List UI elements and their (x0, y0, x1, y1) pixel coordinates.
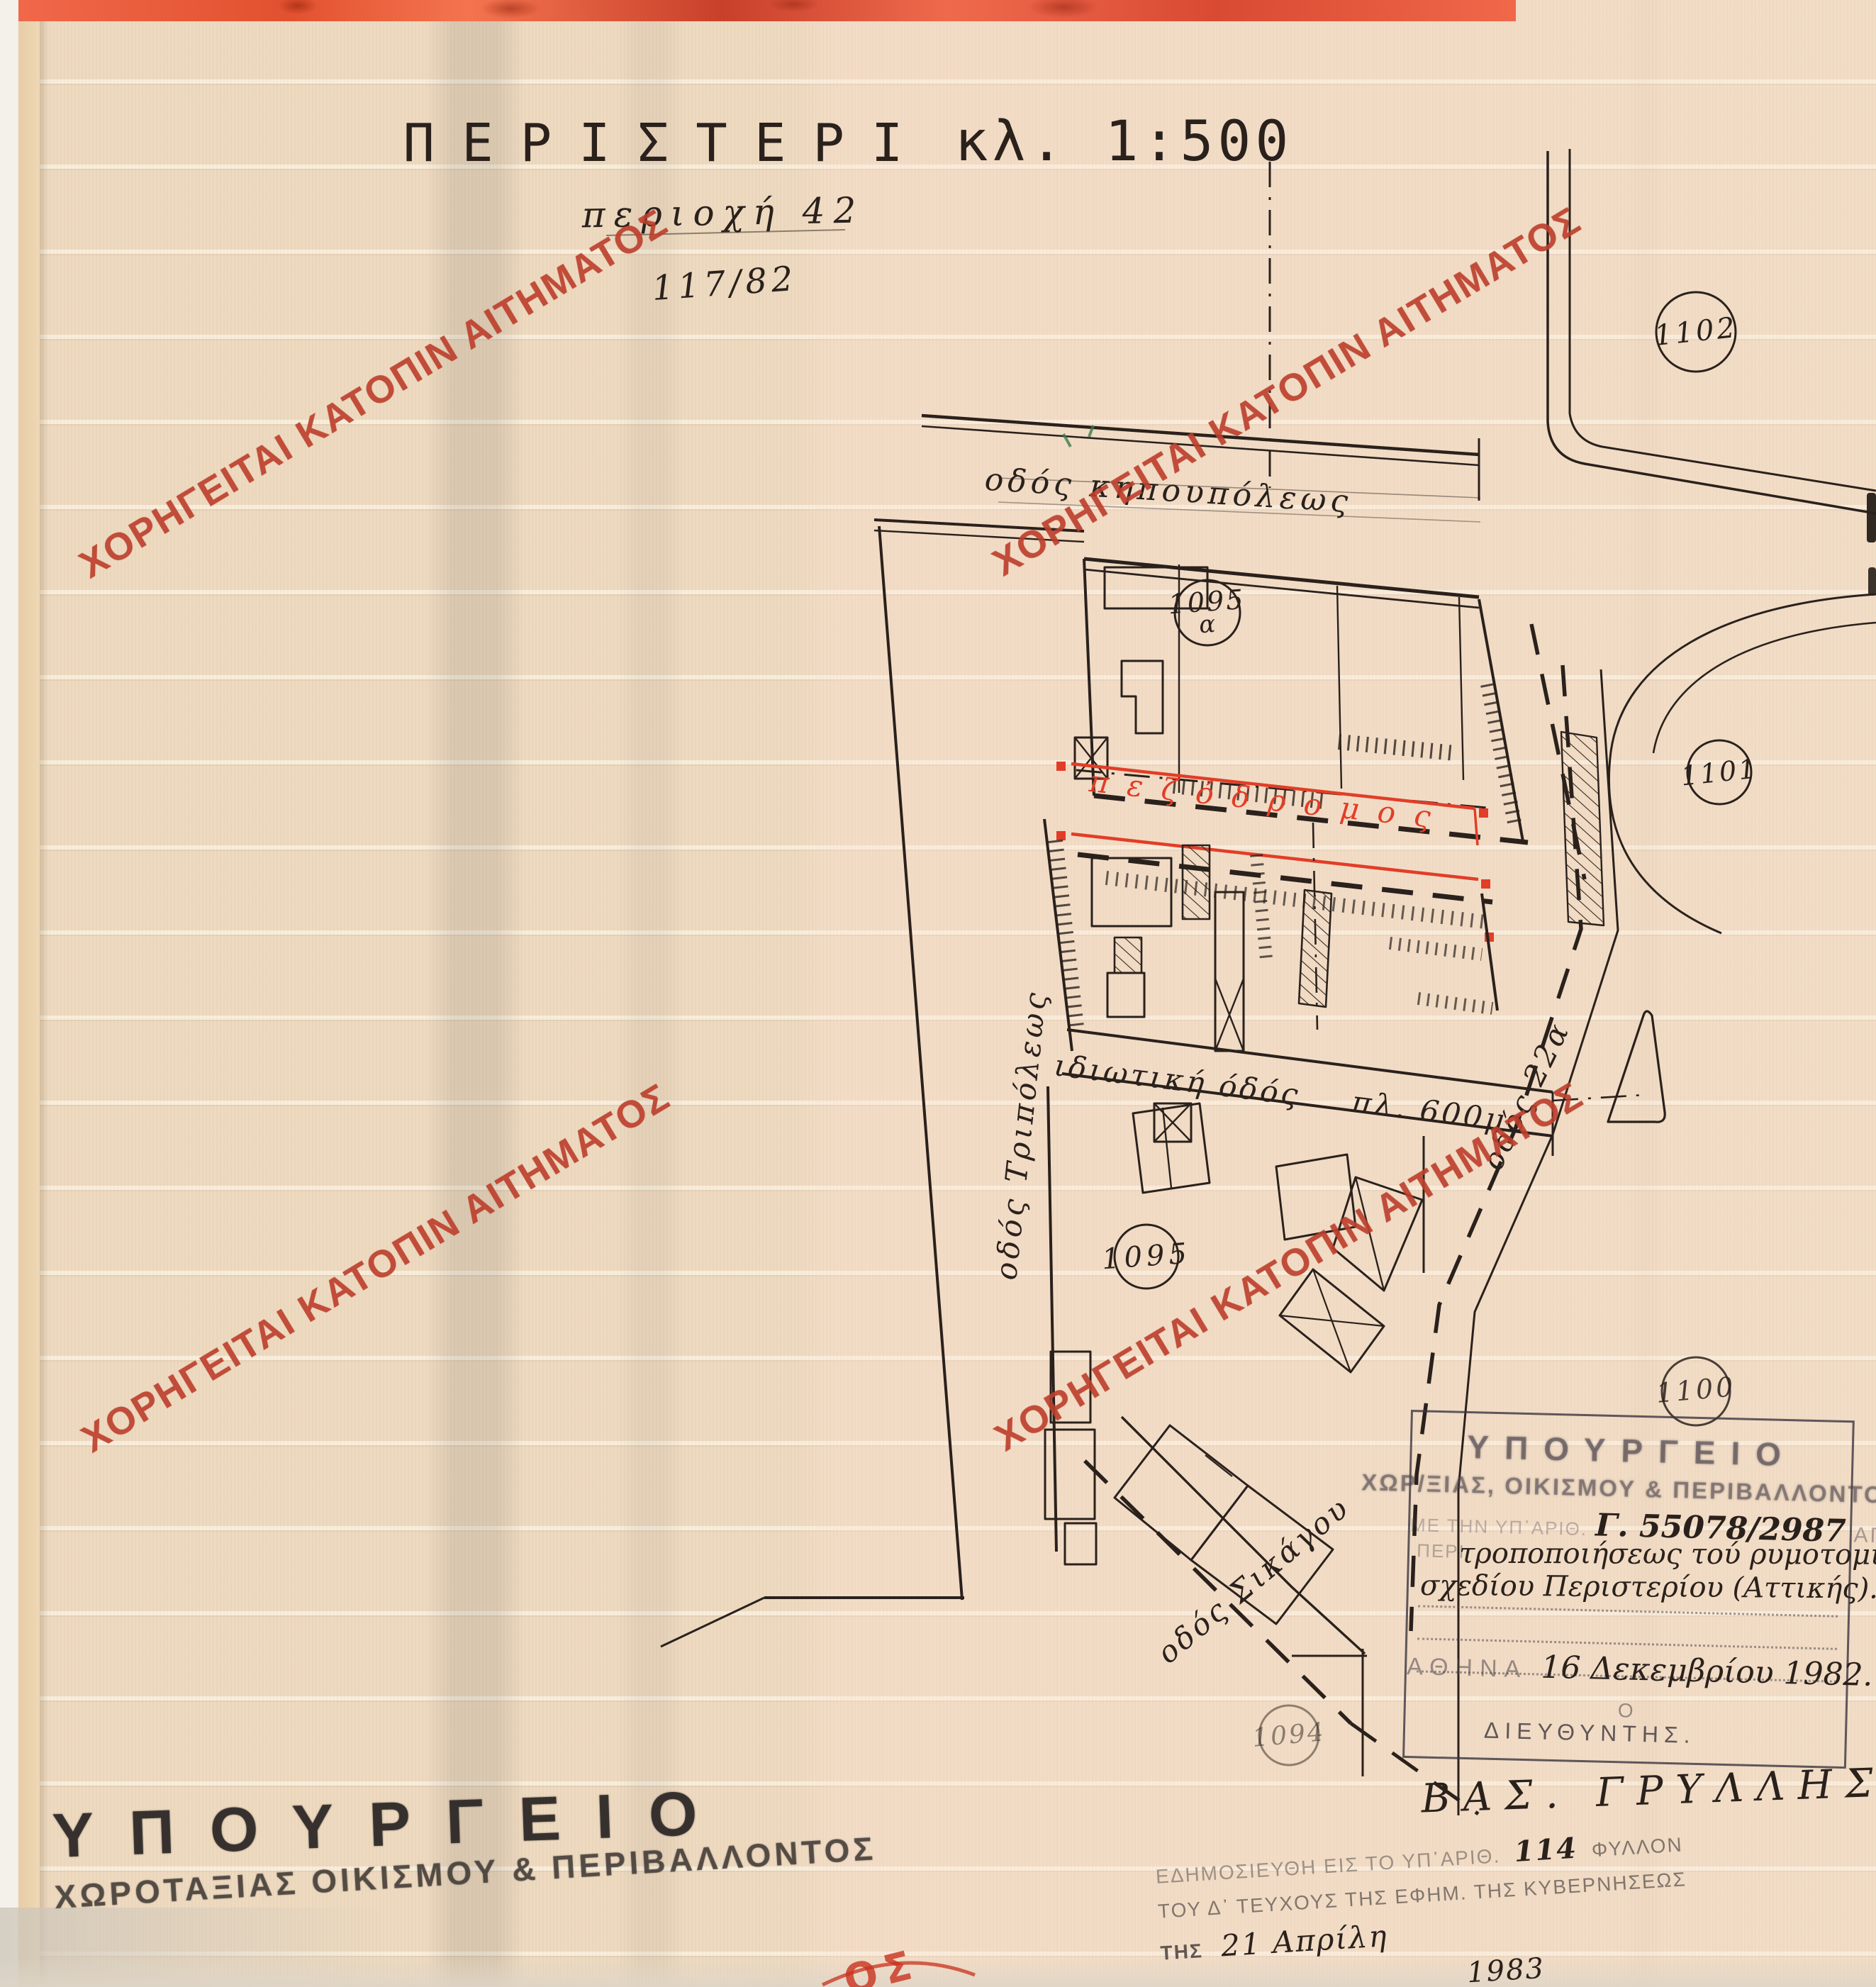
publication-line3-prefix: ΤΗΣ (1160, 1939, 1204, 1964)
approval-date-row: ΑΘΗΝΑ 16 Δεκεμβρίου 1982. (1407, 1646, 1847, 1693)
approval-city: ΑΘΗΝΑ (1407, 1653, 1528, 1683)
approval-article-o: Ο (1617, 1699, 1634, 1722)
stamp-dotted-rule-1 (1418, 1605, 1838, 1617)
approval-stamp-ministry: ΥΠΟΥΡΓΕΙΟ (1467, 1427, 1797, 1474)
approval-stamp-box: ΥΠΟΥΡΓΕΙΟ ΧΩΡ/ΞΙΑΣ, ΟΙΚΙΣΜΟΥ & ΠΕΡΙΒΑΛΛΟ… (1402, 1410, 1855, 1769)
plan-title-city: ΠΕΡΙΣΤΕΡΙ (403, 113, 930, 174)
bottom-red-stamp-fragment: ΟΣ (815, 1939, 978, 1987)
bottom-red-fragment-curve (815, 1939, 978, 1987)
publication-note: ΕΔΗΜΟΣΙΕΥΘΗ ΕΙΣ ΤΟ ΥΠ᾽ΑΡΙΘ. 114 ΦΥΛΛΟΝ Τ… (1154, 1822, 1646, 1987)
approval-peri-faded: ΠΕΡΙ (1417, 1540, 1465, 1563)
block-number-1095a: 1095 α (1168, 587, 1248, 638)
approval-subject-line2: σχεδίου Περιστερίου (Αττικής). (1420, 1569, 1876, 1605)
publication-date: 21 Απρίλη (1220, 1919, 1389, 1964)
scanned-plan-document: ΠΕΡΙΣΤΕΡΙ κλ. 1:500 περιοχή 42 117/82 οδ… (0, 0, 1876, 1987)
approval-ref-faded: ΜΕ ΤΗΝ ΥΠ᾽ΑΡΙΘ. (1410, 1514, 1588, 1540)
approval-director-label: ΔΙΕΥΘΥΝΤΗΣ. (1484, 1718, 1697, 1749)
approval-date: 16 Δεκεμβρίου 1982. (1541, 1649, 1873, 1693)
block-number-1095: 1095 (1101, 1237, 1193, 1276)
approval-subject-line1: τροποποιήσεως τού ρυμοτομικού (1459, 1537, 1876, 1571)
street-tripoleos-lines (661, 526, 964, 1647)
block-1095a-lines (1075, 559, 1604, 925)
publication-sheet-number: 114 (1513, 1832, 1578, 1869)
plan-title-scale: κλ. 1:500 (955, 110, 1293, 174)
